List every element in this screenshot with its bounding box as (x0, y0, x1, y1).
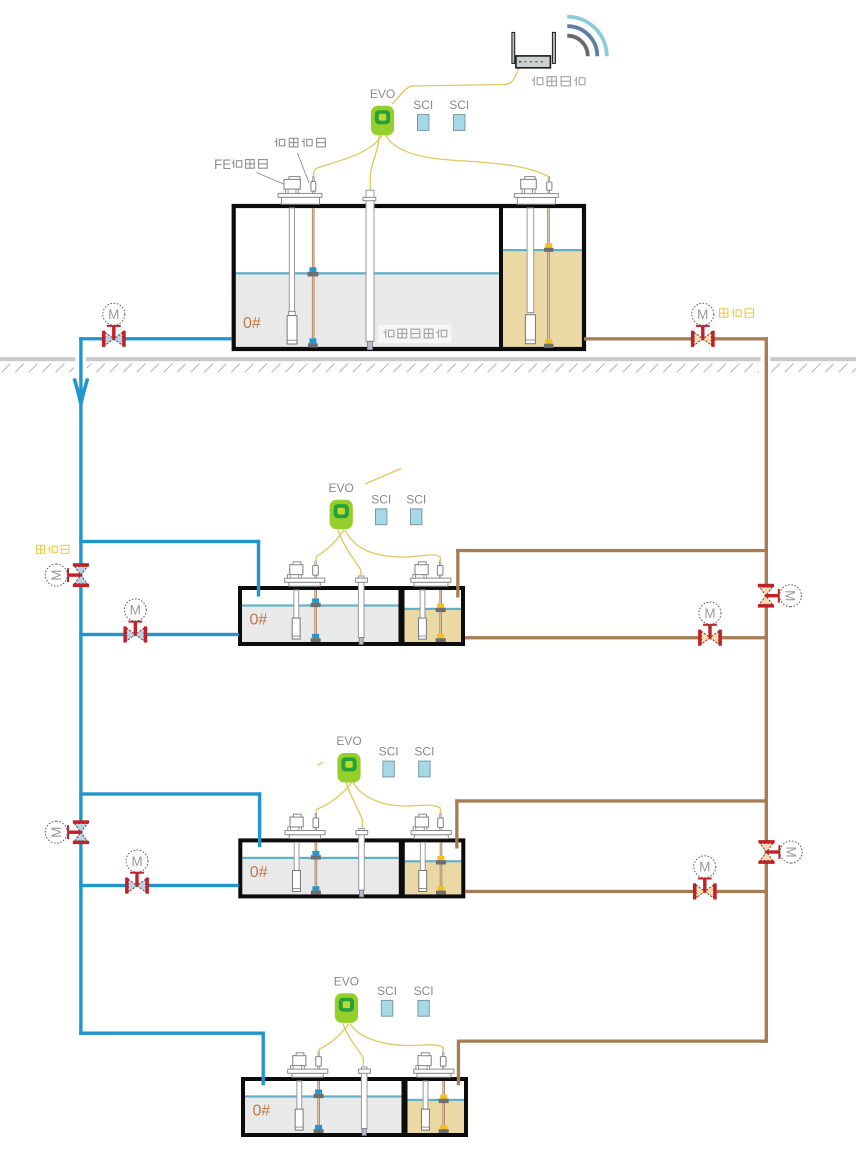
svg-text:0#: 0# (243, 315, 261, 332)
svg-text:FE: FE (214, 157, 231, 172)
